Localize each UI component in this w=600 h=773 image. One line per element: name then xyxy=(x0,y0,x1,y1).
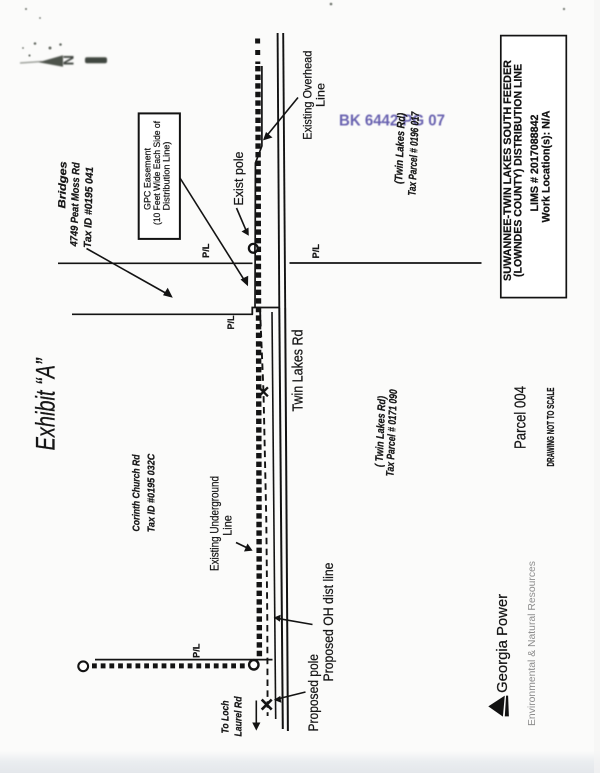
svg-text:Distribution Line): Distribution Line) xyxy=(162,141,172,210)
svg-text:Tax Parcel # 0171 090: Tax Parcel # 0171 090 xyxy=(384,388,400,476)
svg-text:Corinth Church Rd: Corinth Church Rd xyxy=(131,454,143,531)
svg-text:Existing Overhead: Existing Overhead xyxy=(301,51,315,140)
svg-text:(Twin Lakes Rd): (Twin Lakes Rd) xyxy=(393,112,408,184)
svg-text:Line: Line xyxy=(314,83,328,107)
svg-text:Tax Parcel # 0196 017: Tax Parcel # 0196 017 xyxy=(406,111,422,196)
svg-text:(LOWNDES COUNTY) DISTRIBUTION: (LOWNDES COUNTY) DISTRIBUTION LINE xyxy=(513,64,525,277)
svg-text:Proposed pole: Proposed pole xyxy=(306,654,321,732)
svg-text:Existing Underground: Existing Underground xyxy=(207,476,221,571)
svg-text:P/L: P/L xyxy=(226,315,237,329)
svg-text:Work Location(s): N/A: Work Location(s): N/A xyxy=(541,110,553,222)
svg-text:Line: Line xyxy=(221,515,235,536)
svg-text:4749 Peat Moss Rd: 4749 Peat Moss Rd xyxy=(68,162,82,248)
svg-text:LIMS # 2017088842: LIMS # 2017088842 xyxy=(529,115,541,212)
svg-text:BK 6442 PG 07: BK 6442 PG 07 xyxy=(339,113,445,130)
svg-text:Exhibit “A”: Exhibit “A” xyxy=(31,358,61,451)
svg-text:Bridges: Bridges xyxy=(56,161,69,208)
svg-text:P/L: P/L xyxy=(192,643,203,658)
svg-text:Twin Lakes Rd: Twin Lakes Rd xyxy=(289,330,306,412)
svg-text:GPC Easement: GPC Easement xyxy=(143,148,153,210)
svg-text:To Loch: To Loch xyxy=(219,701,231,734)
svg-text:Georgia Power: Georgia Power xyxy=(494,594,511,693)
svg-text:N: N xyxy=(62,55,78,65)
svg-text:Laurel Rd: Laurel Rd xyxy=(233,696,245,736)
svg-text:Proposed OH dist line: Proposed OH dist line xyxy=(321,563,336,682)
svg-text:P/L: P/L xyxy=(201,243,212,258)
svg-text:(10 Feet Wide Each Side of: (10 Feet Wide Each Side of xyxy=(152,121,162,225)
svg-text:Parcel 004: Parcel 004 xyxy=(513,386,530,449)
svg-text:P/L: P/L xyxy=(311,244,322,259)
svg-text:Tax ID #0195 032C: Tax ID #0195 032C xyxy=(146,453,158,532)
svg-text:Exist pole: Exist pole xyxy=(231,152,246,206)
svg-text:Tax ID #0195 041: Tax ID #0195 041 xyxy=(82,167,96,248)
svg-text:DRAWING NOT TO SCALE: DRAWING NOT TO SCALE xyxy=(545,388,557,467)
svg-text:Environmental & Natural Resour: Environmental & Natural Resources xyxy=(526,561,538,726)
